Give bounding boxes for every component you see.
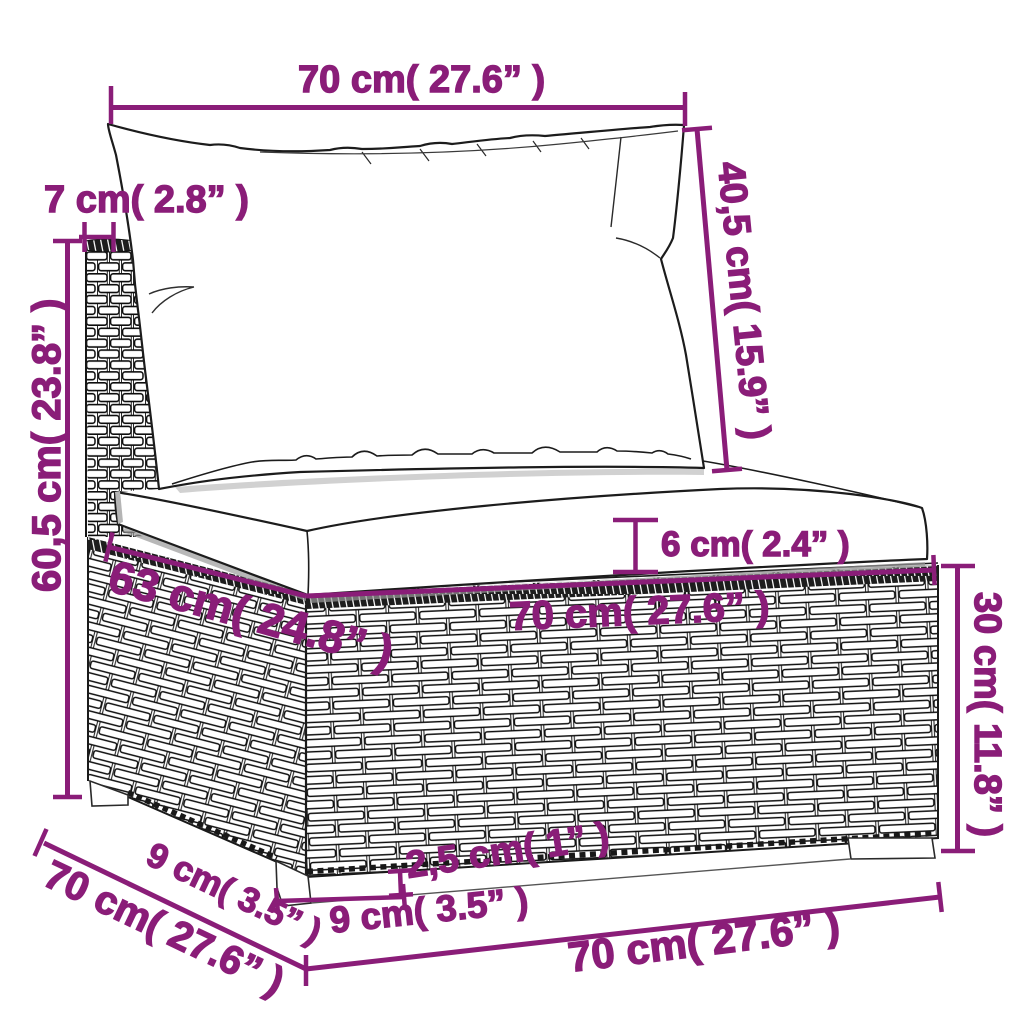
- svg-text:7 cm( 2.8” ): 7 cm( 2.8” ): [44, 179, 249, 221]
- svg-text:60,5 cm( 23.8” ): 60,5 cm( 23.8” ): [25, 299, 69, 593]
- svg-text:6 cm( 2.4” ): 6 cm( 2.4” ): [661, 525, 850, 564]
- svg-text:70 cm( 27.6” ): 70 cm( 27.6” ): [298, 59, 545, 101]
- svg-text:30 cm( 11.8” ): 30 cm( 11.8” ): [966, 592, 1008, 837]
